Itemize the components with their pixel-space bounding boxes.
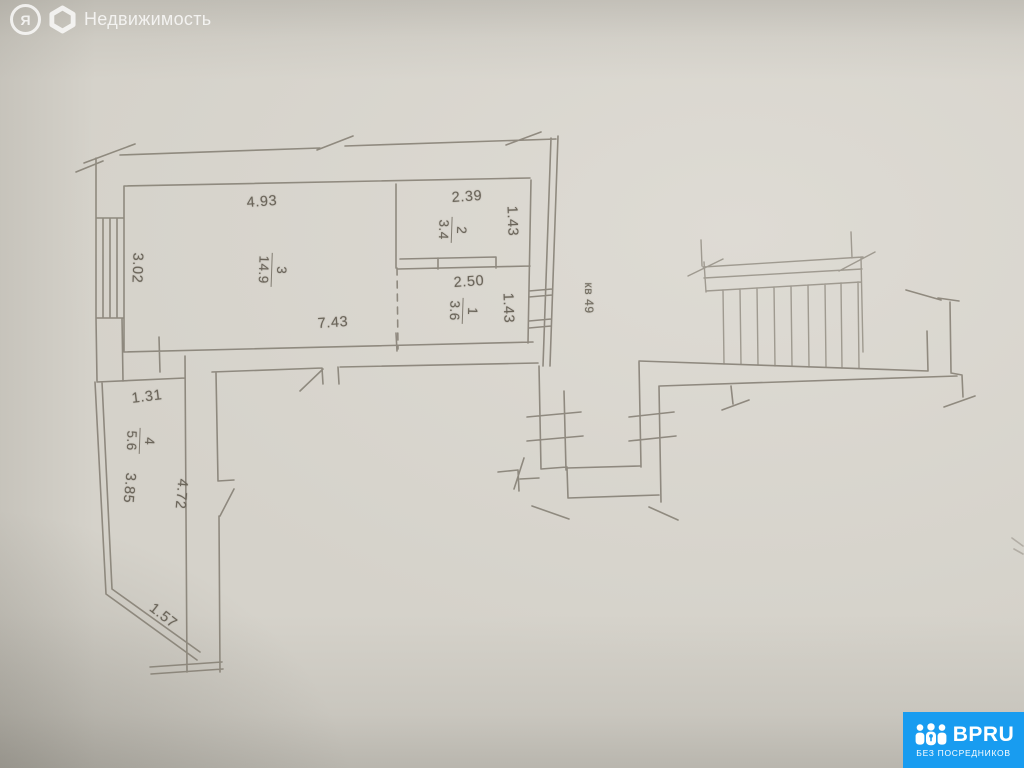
dim-main-room-bottom: 7.43 <box>317 314 349 332</box>
unit-number-label: кв 49 <box>582 282 596 313</box>
floorplan-photo: 4.93 3.02 3 14.9 7.43 2.39 1.43 2 3.4 2.… <box>0 0 1024 768</box>
bpru-brand-text: BPRU <box>953 723 1015 747</box>
room-label-1: 1 3.6 <box>446 297 479 324</box>
dim-room4-diagonal: 1.57 <box>146 600 180 631</box>
house-icon <box>48 5 77 34</box>
people-icon <box>913 723 949 746</box>
dim-main-room-height: 3.02 <box>128 252 145 283</box>
dim-room2-height: 1.43 <box>503 205 520 236</box>
room-3-number: 3 <box>272 263 288 278</box>
room-2-number: 2 <box>452 223 468 238</box>
room-4-number: 4 <box>140 434 156 449</box>
bpru-badge: BPRU БЕЗ ПОСРЕДНИКОВ <box>903 712 1024 768</box>
room-label-4: 4 5.6 <box>123 427 156 454</box>
room-1-number: 1 <box>463 304 479 319</box>
dim-room4-right: 4.72 <box>172 478 191 510</box>
room-4-area: 5.6 <box>123 427 141 454</box>
room-3-area: 14.9 <box>255 252 273 287</box>
dim-room1-height: 1.43 <box>499 292 516 323</box>
plan-labels: 4.93 3.02 3 14.9 7.43 2.39 1.43 2 3.4 2.… <box>0 0 1024 768</box>
dim-room4-left: 3.85 <box>120 472 139 504</box>
dim-room1-width: 2.50 <box>453 273 485 291</box>
room-label-2: 2 3.4 <box>435 216 468 243</box>
dim-room4-top: 1.31 <box>131 387 163 407</box>
room-1-area: 3.6 <box>446 297 464 324</box>
room-2-area: 3.4 <box>435 216 453 243</box>
watermark-label: Недвижимость <box>84 9 211 30</box>
dim-room2-width: 2.39 <box>451 188 483 206</box>
bpru-tagline: БЕЗ ПОСРЕДНИКОВ <box>916 748 1010 758</box>
yandex-realty-watermark: Я Недвижимость <box>10 4 211 35</box>
yandex-logo-icon: Я <box>10 4 41 35</box>
room-label-3: 3 14.9 <box>255 252 289 287</box>
dim-main-room-width: 4.93 <box>246 193 278 211</box>
